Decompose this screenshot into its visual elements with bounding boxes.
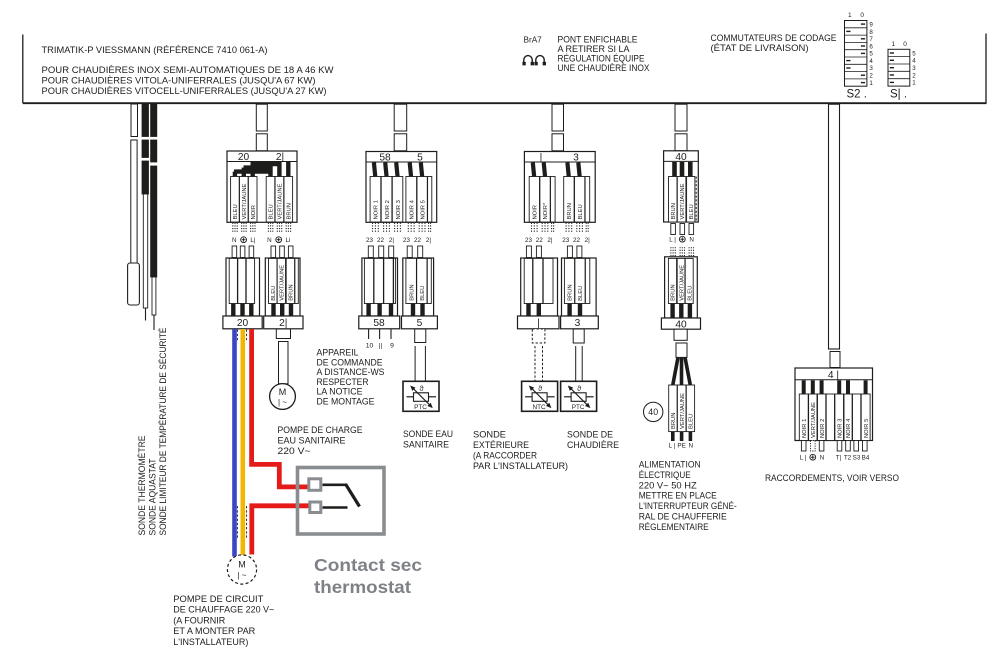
svg-text:1: 1 <box>912 80 916 87</box>
svg-text:SONDE THERMOMÈTRE: SONDE THERMOMÈTRE <box>137 436 147 536</box>
svg-text:PTC: PTC <box>572 404 585 411</box>
svg-text:NOIR 2: NOIR 2 <box>820 419 826 438</box>
svg-text:S3: S3 <box>853 455 861 462</box>
svg-text:NOIR 5: NOIR 5 <box>420 200 426 219</box>
svg-text:BLEU: BLEU <box>578 204 584 219</box>
svg-text:23: 23 <box>525 237 533 244</box>
svg-text:DE CHAUFFAGE 220 V~: DE CHAUFFAGE 220 V~ <box>173 605 275 615</box>
svg-text:VERT/JAUNE: VERT/JAUNE <box>680 183 686 219</box>
svg-text:4 |: 4 | <box>828 370 839 381</box>
svg-text:L |: L | <box>800 455 807 462</box>
svg-text:EXTÉRIEURE: EXTÉRIEURE <box>473 440 529 450</box>
svg-text:0: 0 <box>860 12 864 19</box>
svg-text:NOIR 5: NOIR 5 <box>864 419 870 438</box>
svg-text:N: N <box>689 237 694 244</box>
svg-text:ET A MONTER PAR: ET A MONTER PAR <box>173 626 255 636</box>
svg-text:10: 10 <box>366 343 374 350</box>
svg-text:(ÉTAT DE LIVRAISON): (ÉTAT DE LIVRAISON) <box>711 43 809 53</box>
svg-text:N: N <box>820 455 825 462</box>
svg-text:L'INSTALLATEUR): L'INSTALLATEUR) <box>173 637 248 647</box>
svg-text:0: 0 <box>903 41 907 48</box>
svg-text:T2: T2 <box>844 455 852 462</box>
svg-text:BLEU: BLEU <box>420 286 426 301</box>
svg-text:UNE CHAUDIÈRE INOX: UNE CHAUDIÈRE INOX <box>558 63 650 73</box>
svg-text:POUR CHAUDIÈRES VITOLA-UNIFERR: POUR CHAUDIÈRES VITOLA-UNIFERRALES (JUSQ… <box>42 76 316 87</box>
svg-text:RAL DE CHAUFFERIE: RAL DE CHAUFFERIE <box>639 512 727 522</box>
svg-text:|: | <box>540 153 543 164</box>
svg-text:BRUN: BRUN <box>289 284 295 300</box>
svg-text:22: 22 <box>573 237 581 244</box>
svg-text:58: 58 <box>379 153 391 164</box>
svg-text:40: 40 <box>648 407 658 417</box>
svg-text:M: M <box>279 387 287 397</box>
svg-text:BLEU: BLEU <box>689 414 695 429</box>
svg-text:VERT/JAUNE: VERT/JAUNE <box>679 265 685 301</box>
svg-text:20: 20 <box>238 152 250 163</box>
svg-text:2|: 2| <box>389 237 395 244</box>
svg-text:B4: B4 <box>862 455 870 462</box>
svg-text:NOIR 2: NOIR 2 <box>385 200 391 219</box>
svg-text:A DISTANCE-WS: A DISTANCE-WS <box>317 367 385 377</box>
svg-text:RÉGLEMENTAIRE: RÉGLEMENTAIRE <box>639 522 709 532</box>
svg-text:N: N <box>232 237 237 244</box>
svg-text:POUR CHAUDIÈRES INOX SEMI-AUTO: POUR CHAUDIÈRES INOX SEMI-AUTOMATIQUES D… <box>42 65 335 76</box>
svg-text:POUR CHAUDIÈRES VITOCELL-UNIFE: POUR CHAUDIÈRES VITOCELL-UNIFERRALES (JU… <box>42 86 327 97</box>
svg-text:|: | <box>537 318 540 329</box>
svg-text:BrA7: BrA7 <box>524 36 543 45</box>
svg-text:S| .: S| . <box>890 89 907 101</box>
svg-text:58: 58 <box>373 318 385 329</box>
svg-text:VERT/JAUNE: VERT/JAUNE <box>242 183 248 219</box>
svg-text:5: 5 <box>417 318 423 329</box>
svg-text:TRIMATIK-P VIESSMANN (RÉFÉRENC: TRIMATIK-P VIESSMANN (RÉFÉRENCE 7410 061… <box>42 45 268 56</box>
svg-text:6: 6 <box>869 43 873 50</box>
svg-text:POMPE DE CIRCUIT: POMPE DE CIRCUIT <box>173 594 263 604</box>
svg-text:NOIR 1: NOIR 1 <box>374 200 380 219</box>
svg-text:BLEU: BLEU <box>689 204 695 219</box>
svg-text:1: 1 <box>869 80 873 87</box>
svg-text:BLEU: BLEU <box>687 286 693 301</box>
svg-text:A RETIRER SI LA: A RETIRER SI LA <box>558 44 631 54</box>
svg-text:DE COMMANDE: DE COMMANDE <box>317 357 383 367</box>
svg-text:BLEU: BLEU <box>269 204 275 219</box>
svg-text:POMPE DE CHARGE: POMPE DE CHARGE <box>278 425 363 435</box>
svg-text:3: 3 <box>573 153 579 164</box>
svg-text:SONDE AQUASTAT: SONDE AQUASTAT <box>147 458 157 535</box>
svg-text:BLEU: BLEU <box>271 286 277 301</box>
svg-text:2: 2 <box>912 72 916 79</box>
svg-text:1: 1 <box>892 41 896 48</box>
svg-text:BLEU: BLEU <box>578 286 584 301</box>
svg-text:8: 8 <box>869 29 873 36</box>
svg-text:VERT/JAUNE: VERT/JAUNE <box>280 265 286 301</box>
svg-text:||: || <box>379 343 383 350</box>
svg-text:SONDE LIMITEUR DE TEMPÉRATURE: SONDE LIMITEUR DE TEMPÉRATURE DE SÉCURIT… <box>158 327 168 535</box>
svg-text:ALIMENTATION: ALIMENTATION <box>639 460 701 470</box>
svg-text:2|: 2| <box>279 318 287 329</box>
svg-text:BRUN: BRUN <box>671 413 677 429</box>
svg-text:ÉLECTRIQUE: ÉLECTRIQUE <box>639 470 691 480</box>
svg-text:(A FOURNIR: (A FOURNIR <box>173 615 225 625</box>
svg-text:BRUN: BRUN <box>409 284 415 300</box>
svg-text:BRUN: BRUN <box>568 284 574 300</box>
svg-text:DE MONTAGE: DE MONTAGE <box>317 397 375 407</box>
svg-text:5: 5 <box>869 51 873 58</box>
svg-text:23: 23 <box>562 237 570 244</box>
svg-text:SANITAIRE: SANITAIRE <box>403 440 449 450</box>
svg-text:3: 3 <box>575 318 581 329</box>
svg-text:L |: L | <box>669 443 676 450</box>
svg-text:BRUN: BRUN <box>567 203 573 219</box>
svg-text:Li: Li <box>286 237 291 244</box>
svg-text:BRUN: BRUN <box>671 284 677 300</box>
svg-text:2|: 2| <box>547 237 553 244</box>
svg-text:N: N <box>267 237 272 244</box>
svg-text:SONDE: SONDE <box>473 430 506 440</box>
svg-text:LA NOTICE: LA NOTICE <box>317 387 363 397</box>
svg-text:EAU SANITAIRE: EAU SANITAIRE <box>278 435 346 445</box>
svg-text:VERT/JAUNE: VERT/JAUNE <box>278 183 284 219</box>
svg-text:7: 7 <box>869 36 873 43</box>
svg-text:4: 4 <box>912 58 916 65</box>
svg-text:S2 .: S2 . <box>847 89 867 101</box>
svg-text:2|: 2| <box>276 152 284 163</box>
svg-text:2: 2 <box>869 73 873 80</box>
svg-text:22: 22 <box>414 237 422 244</box>
svg-text:METTRE EN PLACE: METTRE EN PLACE <box>639 491 717 501</box>
svg-text:40: 40 <box>675 152 687 163</box>
svg-text:NOIR 4: NOIR 4 <box>846 418 852 438</box>
svg-text:NOIR 4: NOIR 4 <box>409 199 415 219</box>
svg-text:thermostat: thermostat <box>314 577 411 597</box>
svg-text:| ~: | ~ <box>278 398 287 407</box>
svg-text:NOIR*: NOIR* <box>543 202 549 219</box>
svg-text:SONDE DE: SONDE DE <box>567 430 613 440</box>
svg-text:220 V~ 50 HZ: 220 V~ 50 HZ <box>639 480 697 490</box>
svg-text:NTC: NTC <box>533 404 547 411</box>
svg-text:23: 23 <box>366 237 374 244</box>
svg-text:T|: T| <box>836 455 842 462</box>
svg-text:NOIR: NOIR <box>533 205 539 220</box>
svg-text:PTC: PTC <box>414 404 427 411</box>
svg-text:RÉGULATION ÉQUIPE: RÉGULATION ÉQUIPE <box>558 54 645 64</box>
svg-text:NOIR 3: NOIR 3 <box>837 419 843 438</box>
svg-text:L |: L | <box>669 237 676 244</box>
svg-text:BRUN: BRUN <box>671 203 677 219</box>
svg-text:L'INTERRUPTEUR GÉNÉ-: L'INTERRUPTEUR GÉNÉ- <box>639 501 737 511</box>
svg-text:9: 9 <box>390 343 394 350</box>
svg-text:RESPECTER: RESPECTER <box>317 377 369 387</box>
svg-text:9: 9 <box>869 21 873 28</box>
svg-text:BRUN: BRUN <box>287 203 293 219</box>
svg-text:CHAUDIÈRE: CHAUDIÈRE <box>567 440 619 450</box>
svg-text:5: 5 <box>912 50 916 57</box>
svg-text:PONT ENFICHABLE: PONT ENFICHABLE <box>558 35 638 45</box>
svg-text:VERT/JAUNE: VERT/JAUNE <box>680 393 686 429</box>
svg-text:M: M <box>238 560 246 570</box>
svg-text:(A RACCORDER: (A RACCORDER <box>473 451 537 461</box>
svg-text:NOIR: NOIR <box>251 205 257 220</box>
svg-text:220 V~: 220 V~ <box>278 446 312 456</box>
svg-text:22: 22 <box>377 237 385 244</box>
svg-text:20: 20 <box>237 318 249 329</box>
svg-text:5: 5 <box>417 153 423 164</box>
svg-text:APPAREIL: APPAREIL <box>317 348 359 358</box>
svg-text:L|: L| <box>250 237 256 244</box>
svg-text:22: 22 <box>536 237 544 244</box>
svg-text:PAR L'INSTALLATEUR): PAR L'INSTALLATEUR) <box>473 461 568 471</box>
svg-text:4: 4 <box>869 58 873 65</box>
svg-text:1: 1 <box>848 12 852 19</box>
svg-text:2|: 2| <box>426 237 432 244</box>
svg-text:COMMUTATEURS DE CODAGE: COMMUTATEURS DE CODAGE <box>711 33 837 43</box>
svg-text:3: 3 <box>912 65 916 72</box>
svg-text:2|: 2| <box>585 237 591 244</box>
svg-text:3: 3 <box>869 65 873 72</box>
svg-text:VERT/JAUNE: VERT/JAUNE <box>811 402 817 438</box>
svg-text:NOIR 3: NOIR 3 <box>396 200 402 219</box>
svg-text:SONDE EAU: SONDE EAU <box>403 429 453 439</box>
svg-text:23: 23 <box>403 237 411 244</box>
svg-text:NOIR 1: NOIR 1 <box>802 419 808 438</box>
svg-text:PE: PE <box>677 443 685 450</box>
svg-text:| ~: | ~ <box>238 571 247 580</box>
svg-text:N: N <box>689 443 694 450</box>
svg-text:RACCORDEMENTS, VOIR VERSO: RACCORDEMENTS, VOIR VERSO <box>765 473 899 484</box>
svg-text:BLEU: BLEU <box>233 204 239 219</box>
svg-text:Contact sec: Contact sec <box>314 555 422 575</box>
